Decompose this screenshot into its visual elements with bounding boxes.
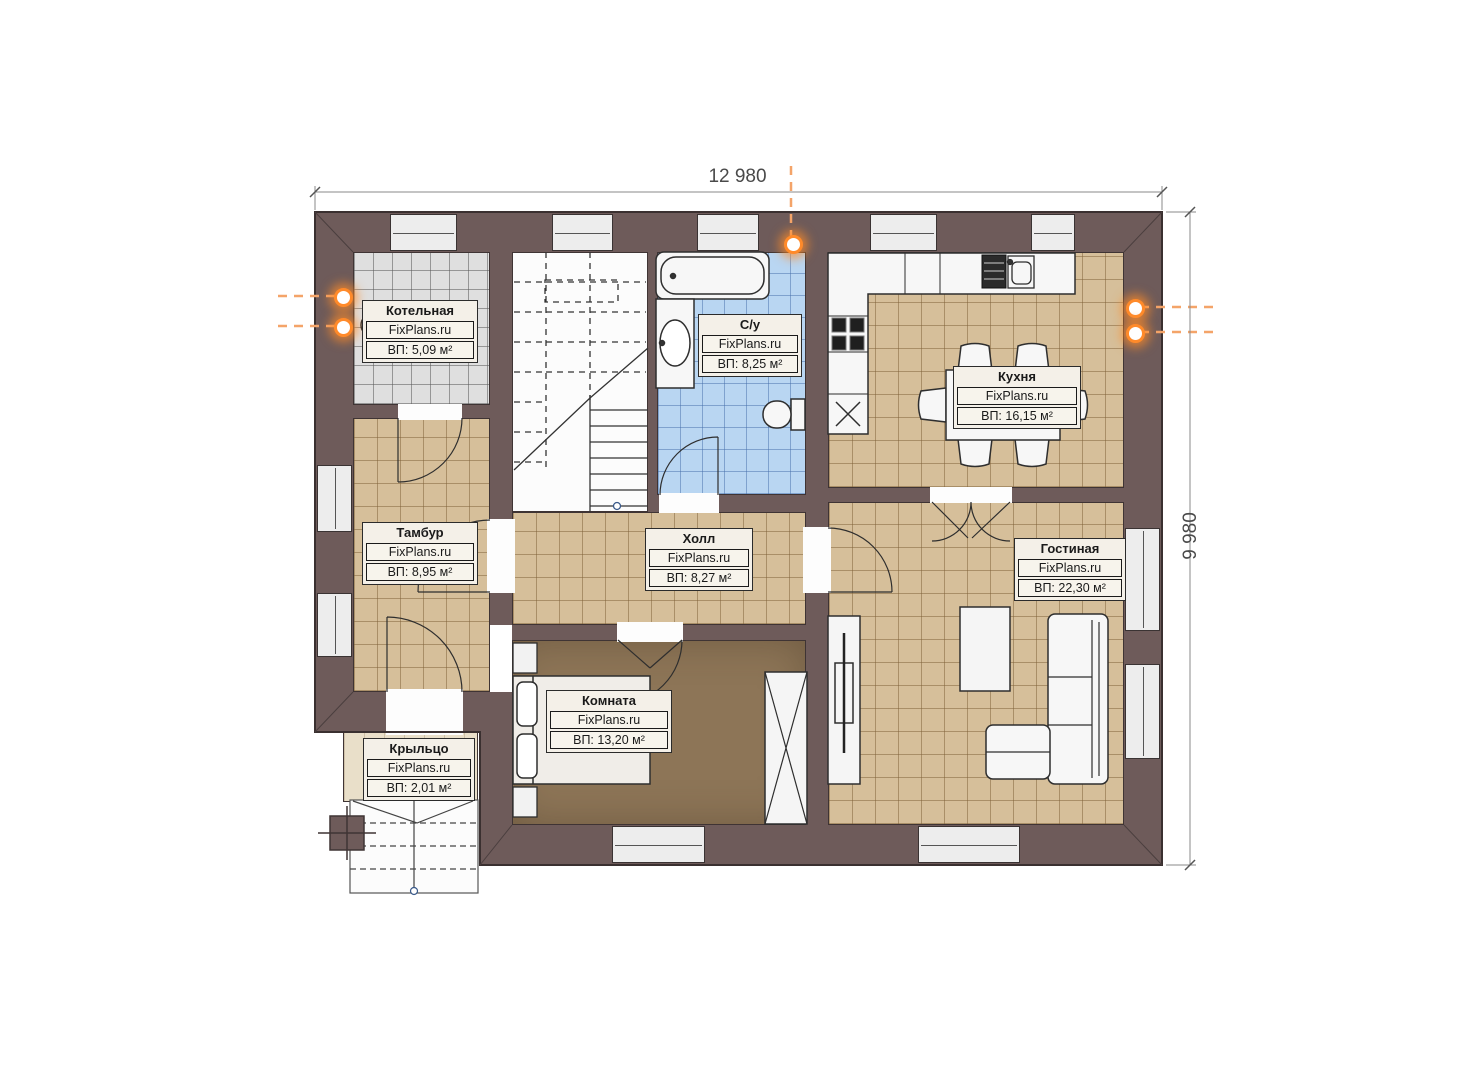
room-brand: FixPlans.ru (550, 711, 668, 729)
room-name: Кухня (957, 369, 1077, 385)
room-area: ВП: 8,27 м² (649, 569, 749, 587)
pillow (517, 734, 537, 778)
wardrobe (765, 672, 807, 824)
room-brand: FixPlans.ru (367, 759, 471, 777)
nightstand (513, 787, 537, 817)
door-arc (828, 528, 892, 592)
room-brand: FixPlans.ru (957, 387, 1077, 405)
room-area: ВП: 5,09 м² (366, 341, 474, 359)
toilet (763, 399, 805, 430)
bathtub (656, 252, 769, 299)
room-brand: FixPlans.ru (366, 321, 474, 339)
kitchen-appliance (982, 255, 1006, 288)
heat-marker-icon (334, 318, 353, 337)
room-brand: FixPlans.ru (702, 335, 798, 353)
tv-stand (828, 616, 860, 784)
room-name: Холл (649, 531, 749, 547)
door-arc (387, 617, 462, 692)
room-label-tambur: Тамбур FixPlans.ru ВП: 8,95 м² (362, 522, 478, 585)
room-label-gostinaya: Гостиная FixPlans.ru ВП: 22,30 м² (1014, 538, 1126, 601)
heat-marker-icon (1126, 299, 1145, 318)
heat-marker-icon (334, 288, 353, 307)
room-area: ВП: 22,30 м² (1018, 579, 1122, 597)
room-label-holl: Холл FixPlans.ru ВП: 8,27 м² (645, 528, 753, 591)
floor-plan: Котельная FixPlans.ru ВП: 5,09 м² С/у Fi… (0, 0, 1473, 1080)
room-name: Тамбур (366, 525, 474, 541)
dimension-width-label: 12 980 (690, 166, 785, 188)
porch-steps (350, 800, 478, 895)
chair (1015, 439, 1049, 467)
dimension-height-label: 9 980 (1180, 501, 1202, 571)
room-area: ВП: 2,01 м² (367, 779, 471, 797)
room-name: Крыльцо (367, 741, 471, 757)
room-name: Котельная (366, 303, 474, 319)
room-label-kryltso: Крыльцо FixPlans.ru ВП: 2,01 м² (363, 738, 475, 801)
door-arc-double (932, 502, 1010, 541)
room-area: ВП: 13,20 м² (550, 731, 668, 749)
room-brand: FixPlans.ru (649, 549, 749, 567)
room-name: Гостиная (1018, 541, 1122, 557)
staircase (514, 252, 648, 512)
room-name: Комната (550, 693, 668, 709)
chair (958, 439, 992, 467)
pillow (517, 682, 537, 726)
chair (919, 388, 947, 422)
bathroom-sink (656, 299, 694, 388)
coffee-table (960, 607, 1010, 691)
room-label-su: С/у FixPlans.ru ВП: 8,25 м² (698, 314, 802, 377)
room-area: ВП: 8,25 м² (702, 355, 798, 373)
room-area: ВП: 16,15 м² (957, 407, 1077, 425)
room-label-kotelnaya: Котельная FixPlans.ru ВП: 5,09 м² (362, 300, 478, 363)
door-arc (398, 418, 462, 482)
nightstand (513, 643, 537, 673)
room-name: С/у (702, 317, 798, 333)
room-label-komnata: Комната FixPlans.ru ВП: 13,20 м² (546, 690, 672, 753)
room-brand: FixPlans.ru (366, 543, 474, 561)
kitchen-sink (1008, 256, 1035, 288)
heat-marker-icon (784, 235, 803, 254)
room-label-kuhnya: Кухня FixPlans.ru ВП: 16,15 м² (953, 366, 1081, 429)
room-brand: FixPlans.ru (1018, 559, 1122, 577)
door-arc (660, 437, 718, 495)
heat-marker-icon (1126, 324, 1145, 343)
room-area: ВП: 8,95 м² (366, 563, 474, 581)
